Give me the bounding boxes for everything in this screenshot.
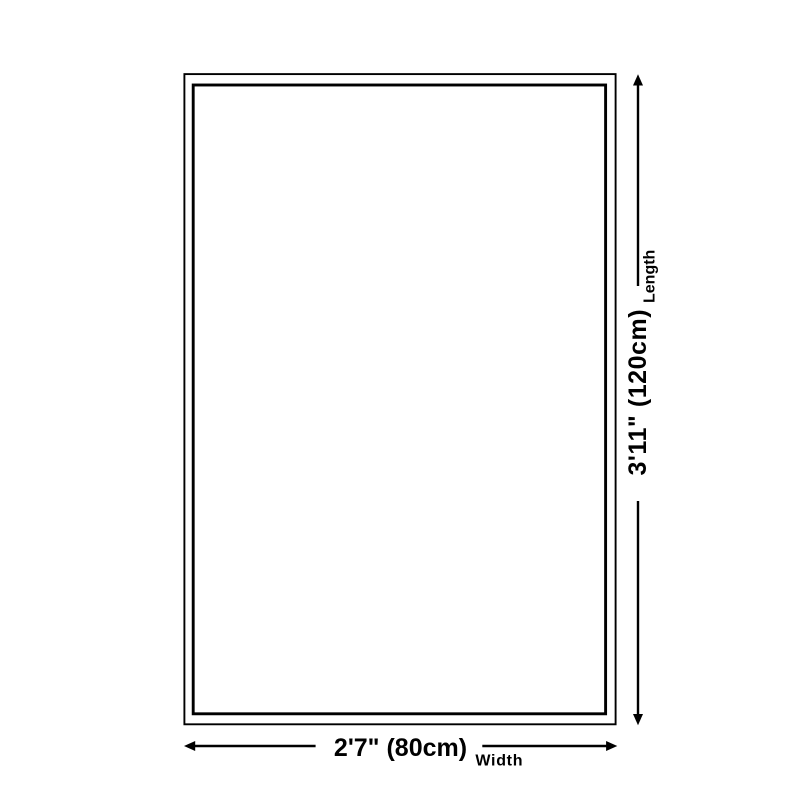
svg-text:3'11" (120cm): 3'11" (120cm) [624, 309, 652, 476]
svg-text:Length: Length [641, 250, 658, 303]
svg-text:Width: Width [475, 752, 523, 769]
svg-text:2'7" (80cm): 2'7" (80cm) [334, 734, 467, 762]
